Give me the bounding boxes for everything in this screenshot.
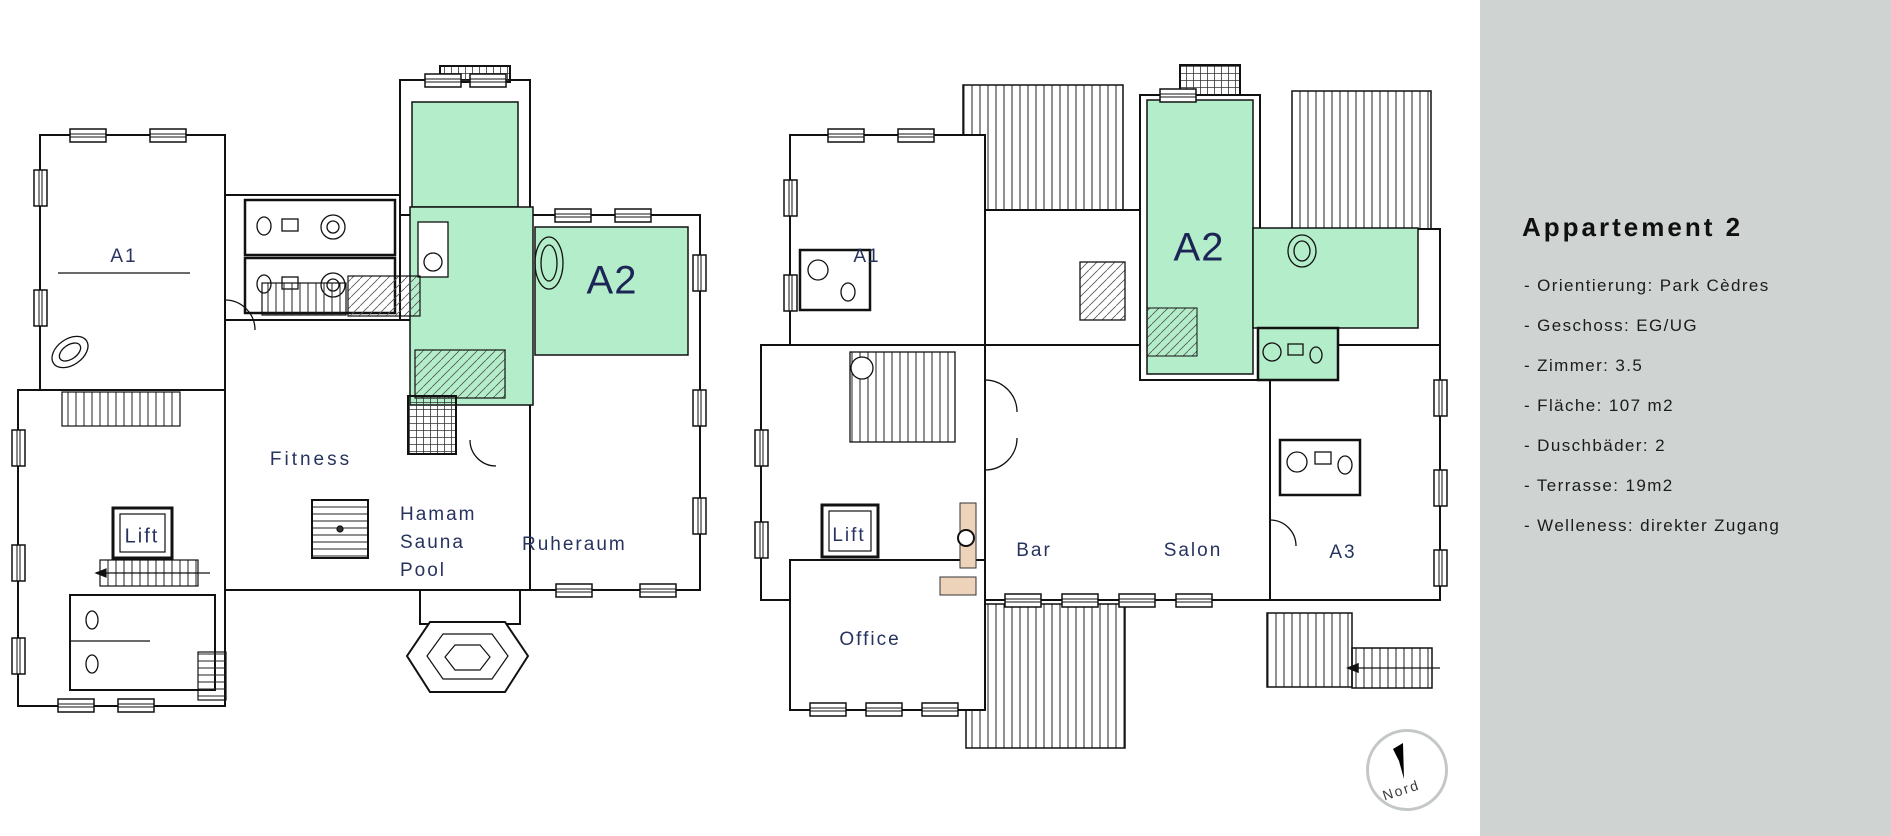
room-label-salon: Salon (1164, 540, 1223, 562)
left-floorplan (0, 40, 745, 730)
room-label-a2-right: A2 (1174, 226, 1225, 271)
north-compass: Nord (1366, 729, 1448, 811)
apartment-details-list: - Orientierung: Park Cèdres - Geschoss: … (1524, 266, 1780, 546)
room-label-ruheraum: Ruheraum (522, 534, 627, 556)
left-plan-walls (18, 66, 700, 706)
room-label-a2-left: A2 (587, 259, 638, 304)
detail-orientierung: - Orientierung: Park Cèdres (1524, 266, 1780, 306)
detail-geschoss: - Geschoss: EG/UG (1524, 306, 1780, 346)
floorplan-page: A1 A2 Fitness Lift Hamam Sauna Pool Ruhe… (0, 0, 1891, 836)
detail-flaeche: - Fläche: 107 m2 (1524, 386, 1780, 426)
right-floorplan (745, 55, 1475, 765)
room-label-a1-right: A1 (853, 246, 880, 268)
room-label-bar: Bar (1016, 540, 1052, 562)
apartment-info-panel: Appartement 2 - Orientierung: Park Cèdre… (1480, 0, 1891, 836)
room-label-a1-left: A1 (110, 246, 137, 268)
detail-terrasse: - Terrasse: 19m2 (1524, 466, 1780, 506)
room-label-office: Office (839, 629, 900, 651)
apartment-title: Appartement 2 (1522, 212, 1743, 243)
north-arrow-icon (1369, 732, 1445, 808)
room-label-hamam-sauna-pool: Hamam Sauna Pool (400, 501, 477, 585)
room-label-lift-right: Lift (832, 525, 865, 547)
detail-duschbaeder: - Duschbäder: 2 (1524, 426, 1780, 466)
room-label-a3: A3 (1329, 542, 1356, 564)
room-label-lift-left: Lift (125, 526, 160, 549)
detail-welleness: - Welleness: direkter Zugang (1524, 506, 1780, 546)
room-label-fitness: Fitness (270, 449, 352, 471)
left-plan-hex-tower (407, 622, 528, 692)
detail-zimmer: - Zimmer: 3.5 (1524, 346, 1780, 386)
